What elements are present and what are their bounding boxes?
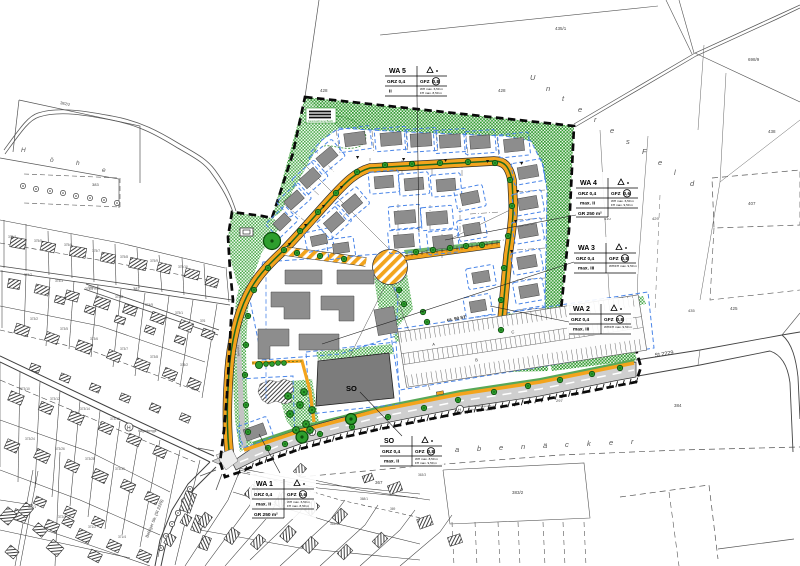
svg-text:U: U bbox=[530, 73, 536, 82]
svg-text:GRZ 0,4: GRZ 0,4 bbox=[254, 492, 272, 498]
svg-text:max. II: max. II bbox=[256, 502, 272, 508]
svg-text:0,6: 0,6 bbox=[300, 492, 307, 498]
svg-text:374/2: 374/2 bbox=[24, 273, 32, 277]
svg-text:371/2: 371/2 bbox=[88, 525, 96, 529]
svg-text:373/14: 373/14 bbox=[80, 407, 90, 411]
svg-text:297: 297 bbox=[556, 398, 563, 403]
svg-text:max. II: max. II bbox=[580, 201, 596, 207]
svg-text:GFZ: GFZ bbox=[287, 492, 297, 498]
svg-text:373/30: 373/30 bbox=[115, 467, 125, 471]
svg-text:374/9: 374/9 bbox=[145, 303, 153, 307]
svg-text:373/5: 373/5 bbox=[60, 327, 68, 331]
svg-text:ä: ä bbox=[543, 441, 547, 450]
svg-text:373/8: 373/8 bbox=[150, 355, 158, 359]
svg-text:max. II: max. II bbox=[384, 459, 400, 465]
svg-text:WA 2: WA 2 bbox=[573, 306, 590, 313]
svg-text:373/6: 373/6 bbox=[90, 337, 98, 341]
svg-text:GRZ 0,4: GRZ 0,4 bbox=[576, 256, 594, 262]
svg-text:375/1: 375/1 bbox=[175, 311, 183, 315]
svg-text:WA 5: WA 5 bbox=[389, 68, 406, 75]
svg-text:425: 425 bbox=[730, 306, 738, 311]
svg-text:0,8: 0,8 bbox=[433, 79, 440, 85]
svg-text:375/2: 375/2 bbox=[180, 363, 188, 367]
svg-text:369: 369 bbox=[390, 507, 396, 511]
svg-text:373/28: 373/28 bbox=[85, 457, 95, 461]
svg-text:e: e bbox=[609, 438, 613, 447]
svg-text:374/8: 374/8 bbox=[115, 295, 123, 299]
svg-text:435: 435 bbox=[688, 308, 695, 313]
svg-text:374/3: 374/3 bbox=[55, 279, 63, 283]
svg-text:372/3: 372/3 bbox=[58, 515, 66, 519]
svg-text:GFZ: GFZ bbox=[604, 317, 614, 323]
svg-text:383/2: 383/2 bbox=[512, 490, 524, 495]
svg-text:b: b bbox=[477, 444, 481, 453]
svg-text:373/2: 373/2 bbox=[30, 317, 38, 321]
svg-text:698/9: 698/9 bbox=[748, 57, 760, 62]
svg-text:GRZ 0,4: GRZ 0,4 bbox=[387, 79, 405, 85]
svg-text:a: a bbox=[455, 445, 459, 454]
svg-text:375/10: 375/10 bbox=[178, 265, 188, 269]
svg-text:n: n bbox=[546, 84, 550, 93]
svg-text:0,8: 0,8 bbox=[622, 256, 629, 262]
svg-text:e: e bbox=[658, 158, 662, 167]
svg-text:n: n bbox=[521, 442, 525, 451]
svg-text:WA 1: WA 1 bbox=[256, 481, 273, 488]
svg-text:435/1: 435/1 bbox=[555, 26, 567, 31]
svg-text:e: e bbox=[578, 105, 582, 114]
svg-text:GR 250 m²: GR 250 m² bbox=[578, 211, 602, 217]
svg-text:373/16: 373/16 bbox=[110, 417, 120, 421]
svg-text:ö: ö bbox=[50, 157, 54, 164]
svg-text:c: c bbox=[565, 440, 569, 449]
svg-text:H: H bbox=[21, 147, 26, 154]
svg-text:371/4: 371/4 bbox=[118, 535, 126, 539]
svg-text:GFZ: GFZ bbox=[611, 191, 621, 197]
svg-text:0,8: 0,8 bbox=[428, 449, 435, 455]
svg-text:373/12: 373/12 bbox=[50, 397, 60, 401]
svg-text:0,6: 0,6 bbox=[624, 191, 631, 197]
svg-text:WA 3: WA 3 bbox=[578, 245, 595, 252]
svg-text:375/6: 375/6 bbox=[64, 243, 72, 247]
svg-text:372/1: 372/1 bbox=[28, 505, 36, 509]
svg-text:GFZ: GFZ bbox=[420, 79, 430, 85]
svg-text:Kennzeichnung Bepfl.: Kennzeichnung Bepfl. bbox=[308, 119, 334, 123]
svg-text:407: 407 bbox=[748, 201, 756, 206]
svg-text:438: 438 bbox=[768, 129, 776, 134]
svg-text:H: H bbox=[127, 426, 131, 432]
svg-text:SO: SO bbox=[346, 384, 357, 393]
svg-text:GFZ: GFZ bbox=[609, 256, 619, 262]
svg-text:428: 428 bbox=[320, 88, 328, 93]
svg-text:373/24: 373/24 bbox=[25, 437, 35, 441]
svg-text:s: s bbox=[626, 137, 630, 146]
svg-text:WA 4: WA 4 bbox=[580, 180, 597, 187]
svg-text:FH max. 8,50 m: FH max. 8,50 m bbox=[420, 91, 442, 95]
svg-text:375/7: 375/7 bbox=[92, 249, 100, 253]
svg-text:e: e bbox=[102, 167, 106, 174]
svg-text:384: 384 bbox=[674, 403, 682, 408]
svg-text:363/3: 363/3 bbox=[418, 473, 426, 477]
svg-text:375/5: 375/5 bbox=[34, 239, 42, 243]
svg-text:373/26: 373/26 bbox=[55, 447, 65, 451]
svg-text:Hagenbergpl.: Hagenbergpl. bbox=[138, 429, 157, 433]
svg-text:e: e bbox=[499, 443, 503, 452]
svg-text:374/5: 374/5 bbox=[85, 287, 93, 291]
svg-text:0,8: 0,8 bbox=[617, 317, 624, 323]
svg-text:FH max. 9,50 m: FH max. 9,50 m bbox=[415, 461, 437, 465]
svg-text:F: F bbox=[642, 147, 647, 156]
svg-text:373/10: 373/10 bbox=[20, 387, 30, 391]
svg-text:h: h bbox=[76, 160, 80, 167]
svg-text:H: H bbox=[458, 407, 461, 412]
svg-text:FH max. 9,50 m: FH max. 9,50 m bbox=[611, 203, 633, 207]
svg-text:WH/FH max. 9,50 m: WH/FH max. 9,50 m bbox=[609, 264, 637, 268]
svg-text:383: 383 bbox=[92, 182, 99, 187]
svg-text:GRZ 0,4: GRZ 0,4 bbox=[382, 449, 400, 455]
svg-text:GRZ 0,4: GRZ 0,4 bbox=[578, 191, 596, 197]
svg-text:376: 376 bbox=[200, 319, 206, 323]
svg-text:GFZ: GFZ bbox=[415, 449, 425, 455]
svg-text:368/1: 368/1 bbox=[360, 497, 368, 501]
svg-text:SO: SO bbox=[384, 438, 395, 445]
svg-text:WH/FH max. 9,50 m: WH/FH max. 9,50 m bbox=[604, 325, 632, 329]
svg-text:375/4: 375/4 bbox=[8, 235, 16, 239]
svg-text:367: 367 bbox=[375, 480, 383, 485]
svg-text:375/8: 375/8 bbox=[120, 255, 128, 259]
svg-text:e: e bbox=[610, 126, 614, 135]
svg-text:FH max. 8,50 m: FH max. 8,50 m bbox=[287, 504, 309, 508]
svg-text:428: 428 bbox=[498, 88, 506, 93]
svg-text:373/7: 373/7 bbox=[120, 347, 128, 351]
svg-text:GRZ 0,4: GRZ 0,4 bbox=[571, 317, 589, 323]
svg-text:429: 429 bbox=[652, 216, 659, 221]
svg-text:375/9: 375/9 bbox=[150, 259, 158, 263]
svg-text:GR 250 m²: GR 250 m² bbox=[254, 512, 278, 518]
svg-text:max. III: max. III bbox=[573, 327, 590, 333]
svg-text:364/3: 364/3 bbox=[330, 522, 338, 526]
svg-text:max. III: max. III bbox=[578, 266, 595, 272]
